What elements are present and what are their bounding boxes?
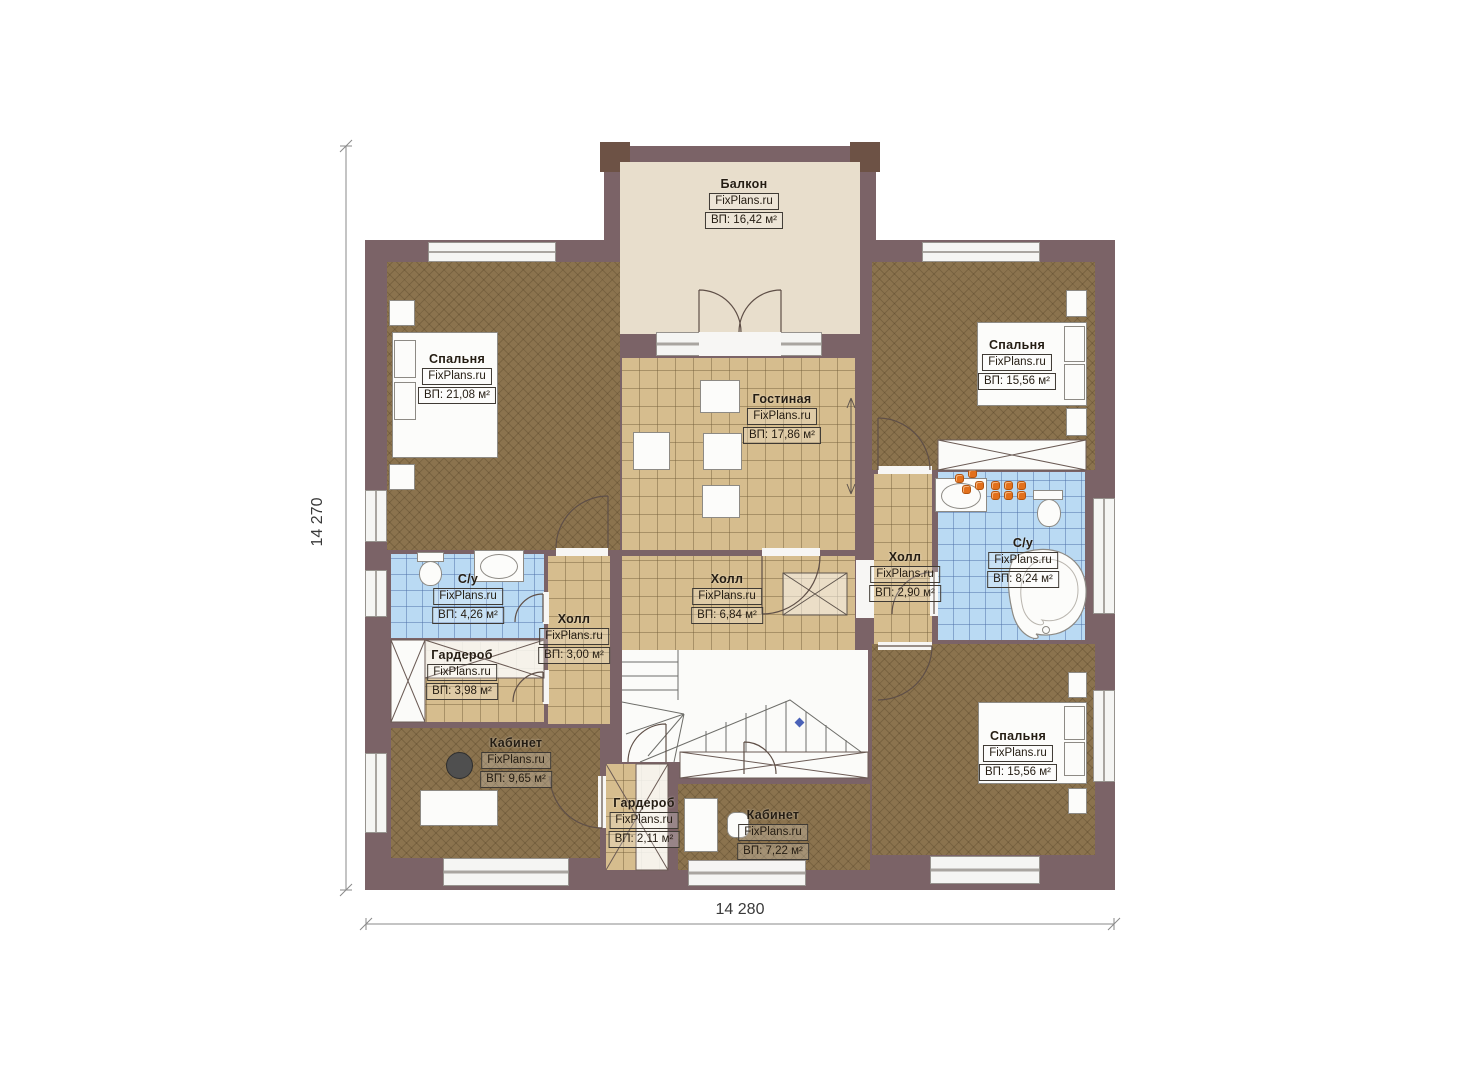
opening-indicator	[847, 398, 855, 494]
brand-box: FixPlans.ru	[433, 588, 503, 605]
brand-box: FixPlans.ru	[427, 664, 497, 681]
brand-box: FixPlans.ru	[539, 628, 609, 645]
dimension-left: 14 270	[309, 140, 352, 896]
room-name: Спальня	[418, 352, 496, 366]
room-label-bath-right: С/у FixPlans.ru ВП: 8,24 м²	[987, 536, 1059, 588]
brand-box: FixPlans.ru	[738, 824, 808, 841]
brand-box: FixPlans.ru	[870, 566, 940, 583]
area-box: ВП: 4,26 м²	[432, 607, 504, 624]
brand-box: FixPlans.ru	[709, 193, 779, 210]
brand-box: FixPlans.ru	[422, 368, 492, 385]
room-name: Холл	[538, 612, 610, 626]
area-box: ВП: 7,22 м²	[737, 843, 809, 860]
brand-box: FixPlans.ru	[692, 588, 762, 605]
plan-linework: 14 270 14 280	[0, 0, 1474, 1080]
room-label-bedroom-tl: Спальня FixPlans.ru ВП: 21,08 м²	[418, 352, 496, 404]
area-box: ВП: 2,90 м²	[869, 585, 941, 602]
room-name: Кабинет	[480, 736, 552, 750]
brand-box: FixPlans.ru	[609, 812, 679, 829]
dimension-bottom: 14 280	[360, 901, 1120, 930]
area-box: ВП: 15,56 м²	[979, 764, 1057, 781]
room-name: Гардероб	[426, 648, 498, 662]
room-label-office-left: Кабинет FixPlans.ru ВП: 9,65 м²	[480, 736, 552, 788]
brand-box: FixPlans.ru	[988, 552, 1058, 569]
area-box: ВП: 16,42 м²	[705, 212, 783, 229]
dimension-left-label: 14 270	[309, 497, 326, 546]
room-name: Гардероб	[609, 796, 680, 810]
room-label-living: Гостиная FixPlans.ru ВП: 17,86 м²	[743, 392, 821, 444]
room-name: С/у	[432, 572, 504, 586]
room-name: С/у	[987, 536, 1059, 550]
area-box: ВП: 6,84 м²	[691, 607, 763, 624]
room-name: Гостиная	[743, 392, 821, 406]
room-label-bedroom-tr: Спальня FixPlans.ru ВП: 15,56 м²	[978, 338, 1056, 390]
room-label-bedroom-br: Спальня FixPlans.ru ВП: 15,56 м²	[979, 729, 1057, 781]
room-label-balcony: Балкон FixPlans.ru ВП: 16,42 м²	[705, 177, 783, 229]
area-box: ВП: 15,56 м²	[978, 373, 1056, 390]
closet	[938, 440, 1086, 470]
room-label-wardrobe-left: Гардероб FixPlans.ru ВП: 3,98 м²	[426, 648, 498, 700]
brand-box: FixPlans.ru	[481, 752, 551, 769]
dimension-bottom-label: 14 280	[716, 901, 765, 918]
room-label-wardrobe-center: Гардероб FixPlans.ru ВП: 2,11 м²	[609, 796, 680, 848]
area-box: ВП: 3,98 м²	[426, 683, 498, 700]
room-label-hall-center: Холл FixPlans.ru ВП: 6,84 м²	[691, 572, 763, 624]
room-label-hall-right: Холл FixPlans.ru ВП: 2,90 м²	[869, 550, 941, 602]
brand-box: FixPlans.ru	[982, 354, 1052, 371]
area-box: ВП: 8,24 м²	[987, 571, 1059, 588]
area-box: ВП: 21,08 м²	[418, 387, 496, 404]
room-label-office-center: Кабинет FixPlans.ru ВП: 7,22 м²	[737, 808, 809, 860]
staircase	[622, 650, 868, 762]
brand-box: FixPlans.ru	[747, 408, 817, 425]
room-label-bath-left: С/у FixPlans.ru ВП: 4,26 м²	[432, 572, 504, 624]
room-name: Балкон	[705, 177, 783, 191]
room-name: Спальня	[978, 338, 1056, 352]
floor-plan: 14 270 14 280 Балкон FixPlans.ru ВП: 16,…	[0, 0, 1474, 1080]
stair-void	[680, 752, 868, 778]
brand-box: FixPlans.ru	[983, 745, 1053, 762]
area-box: ВП: 9,65 м²	[480, 771, 552, 788]
room-name: Холл	[691, 572, 763, 586]
area-box: ВП: 2,11 м²	[609, 831, 680, 848]
room-name: Спальня	[979, 729, 1057, 743]
room-name: Кабинет	[737, 808, 809, 822]
area-box: ВП: 17,86 м²	[743, 427, 821, 444]
area-box: ВП: 3,00 м²	[538, 647, 610, 664]
room-name: Холл	[869, 550, 941, 564]
room-label-hall-small: Холл FixPlans.ru ВП: 3,00 м²	[538, 612, 610, 664]
